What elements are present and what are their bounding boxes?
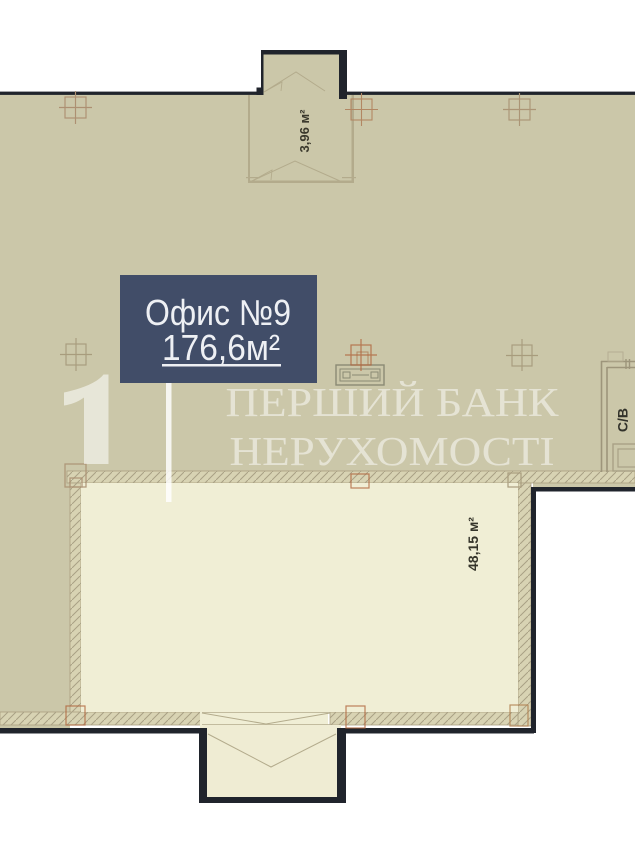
svg-text:176,6м²: 176,6м² (162, 327, 280, 368)
svg-text:3,96 м²: 3,96 м² (297, 109, 312, 153)
svg-text:НЕРУХОМОСТІ: НЕРУХОМОСТІ (230, 428, 555, 474)
svg-text:48,15 м²: 48,15 м² (465, 517, 481, 571)
svg-text:С/В: С/В (615, 408, 631, 432)
svg-text:ПЕРШИЙ БАНК: ПЕРШИЙ БАНК (226, 379, 560, 425)
